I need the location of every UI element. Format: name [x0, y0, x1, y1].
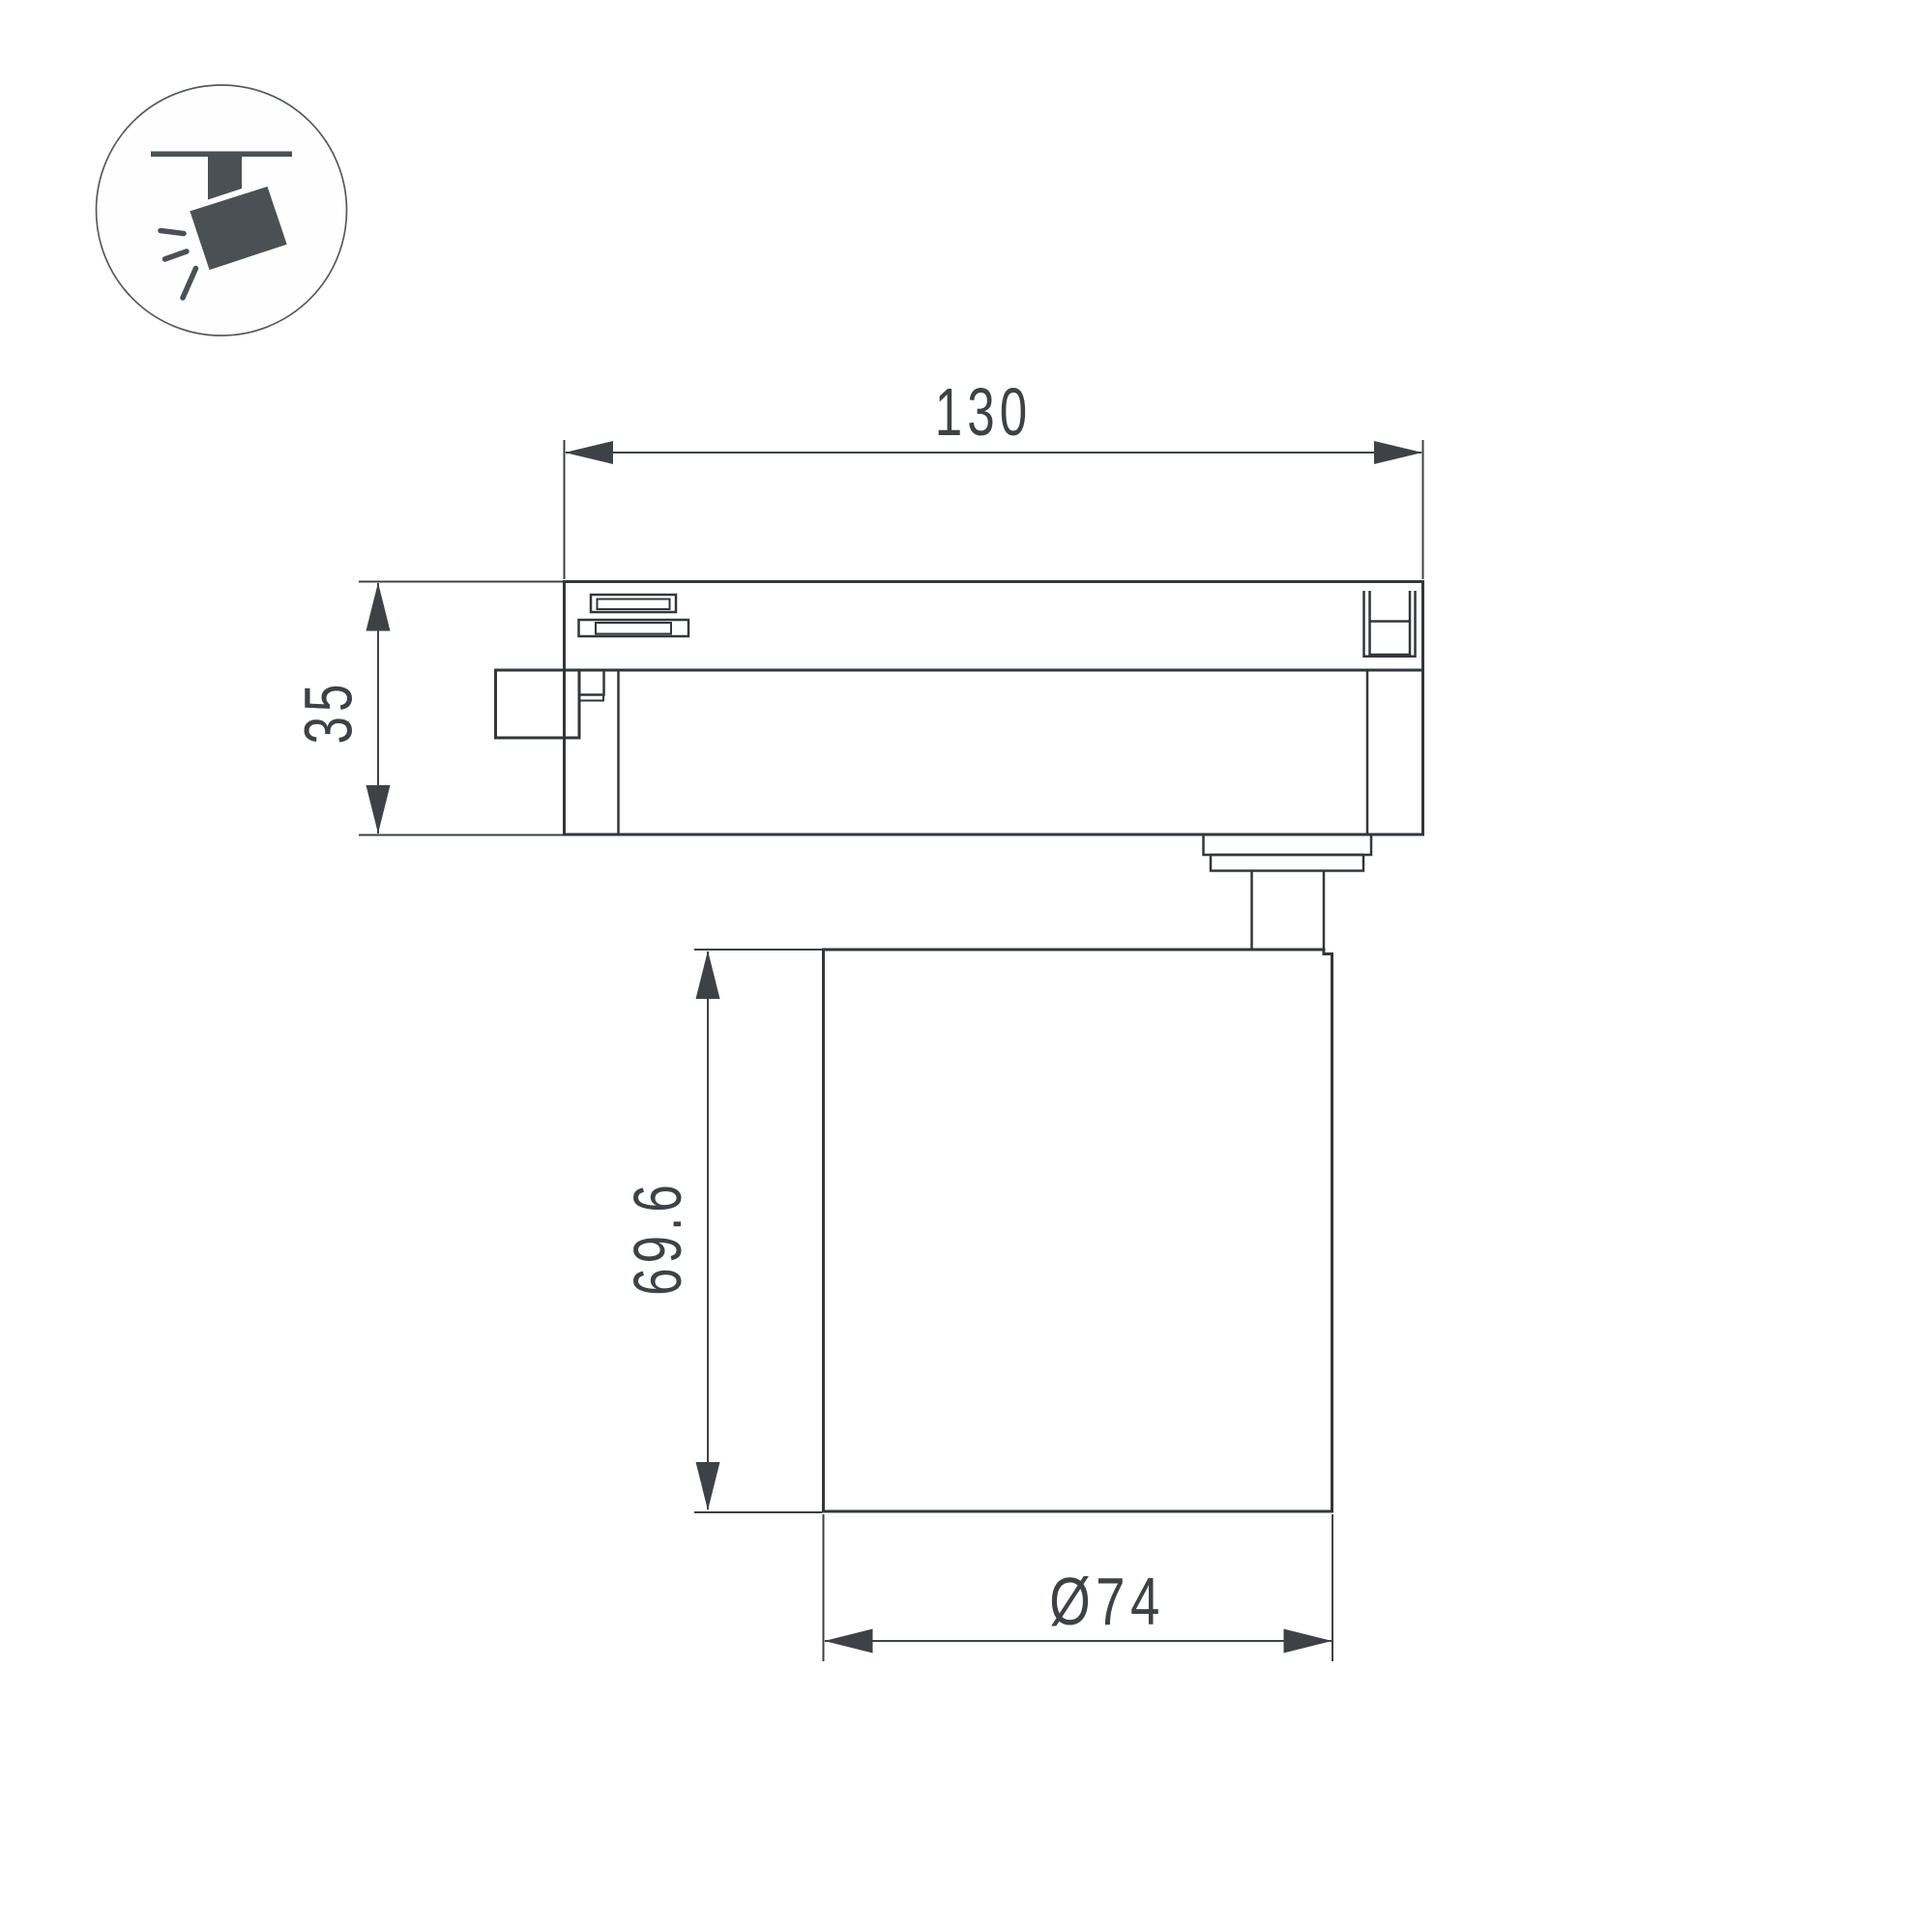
svg-text:130: 130 [935, 374, 1033, 450]
svg-text:69.6: 69.6 [620, 1180, 695, 1296]
svg-text:Ø74: Ø74 [1049, 1565, 1165, 1640]
svg-text:35: 35 [291, 679, 366, 744]
